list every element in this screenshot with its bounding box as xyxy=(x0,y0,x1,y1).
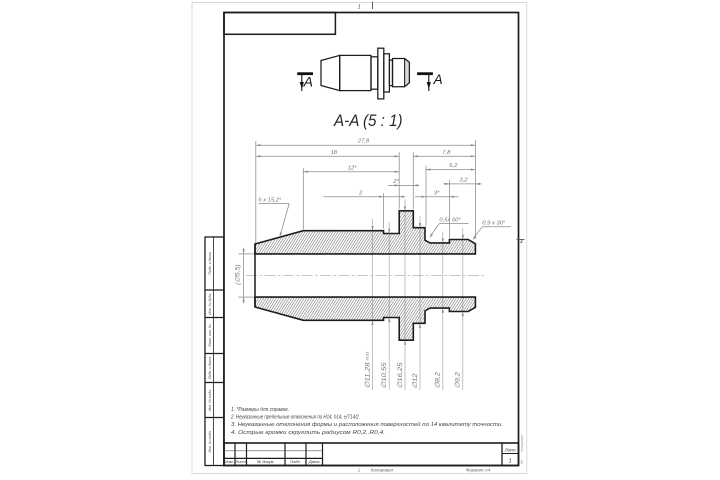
svg-text:A: A xyxy=(433,72,443,87)
svg-text:3,2: 3,2 xyxy=(459,178,468,184)
svg-text:∅11,28: ∅11,28 xyxy=(364,362,371,388)
svg-text:А4: А4 xyxy=(520,460,524,465)
svg-text:1. *Размеры для справок.: 1. *Размеры для справок. xyxy=(231,407,289,413)
svg-text:4: 4 xyxy=(520,240,523,246)
svg-text:Взам. инв. №: Взам. инв. № xyxy=(208,324,212,346)
svg-text:2. Неуказанные предельные откл: 2. Неуказанные предельные отклонения по … xyxy=(230,415,360,421)
svg-text:Подп. и дата: Подп. и дата xyxy=(208,357,212,380)
svg-text:Формат А4: Формат А4 xyxy=(466,468,491,473)
svg-text:Лист: Лист xyxy=(235,459,247,464)
svg-text:+0,03: +0,03 xyxy=(365,352,369,361)
svg-text:Лист: Лист xyxy=(504,447,516,452)
svg-text:∅8,2: ∅8,2 xyxy=(435,372,442,389)
svg-text:6,2: 6,2 xyxy=(449,163,458,169)
svg-text:0,5х 60°: 0,5х 60° xyxy=(439,218,461,224)
svg-text:2*: 2* xyxy=(392,179,399,185)
svg-text:A-A (5 : 1): A-A (5 : 1) xyxy=(333,112,402,130)
svg-text:Подп.: Подп. xyxy=(290,459,301,464)
svg-text:18: 18 xyxy=(331,150,338,156)
svg-text:12*: 12* xyxy=(348,165,357,171)
svg-text:27,8: 27,8 xyxy=(357,139,370,145)
svg-text:3*: 3* xyxy=(434,190,440,196)
svg-text:7,8: 7,8 xyxy=(442,150,451,156)
svg-text:∅12: ∅12 xyxy=(412,373,419,388)
svg-text:(∅5,5): (∅5,5) xyxy=(234,264,241,285)
svg-text:3. Неуказанные отклонения форм: 3. Неуказанные отклонения формы и распол… xyxy=(231,421,503,428)
svg-text:Изм.: Изм. xyxy=(225,459,234,464)
svg-text:Инв. № подл.: Инв. № подл. xyxy=(208,389,212,411)
svg-text:Копировал: Копировал xyxy=(371,468,394,473)
svg-text:1: 1 xyxy=(509,459,512,465)
svg-text:Подп. и дата: Подп. и дата xyxy=(208,252,212,275)
svg-text:Инв. № дубл.: Инв. № дубл. xyxy=(208,293,212,315)
svg-text:№ докум.: № докум. xyxy=(257,459,275,464)
svg-text:Копировал: Копировал xyxy=(520,435,524,452)
svg-text:A: A xyxy=(303,73,313,89)
svg-text:∅16,25: ∅16,25 xyxy=(397,362,404,388)
svg-text:0,9 х 30°: 0,9 х 30° xyxy=(482,221,506,227)
svg-text:6 х 15,2°: 6 х 15,2° xyxy=(258,197,282,203)
svg-text:1: 1 xyxy=(358,5,361,11)
svg-text:4. Острые кромки скруглить рад: 4. Острые кромки скруглить радиусом R0,2… xyxy=(231,430,385,436)
svg-text:∅9,2: ∅9,2 xyxy=(455,372,462,389)
svg-text:Инв. № подл.: Инв. № подл. xyxy=(208,430,212,452)
svg-text:Дата: Дата xyxy=(308,459,320,464)
svg-text:∅10,55: ∅10,55 xyxy=(381,362,388,388)
